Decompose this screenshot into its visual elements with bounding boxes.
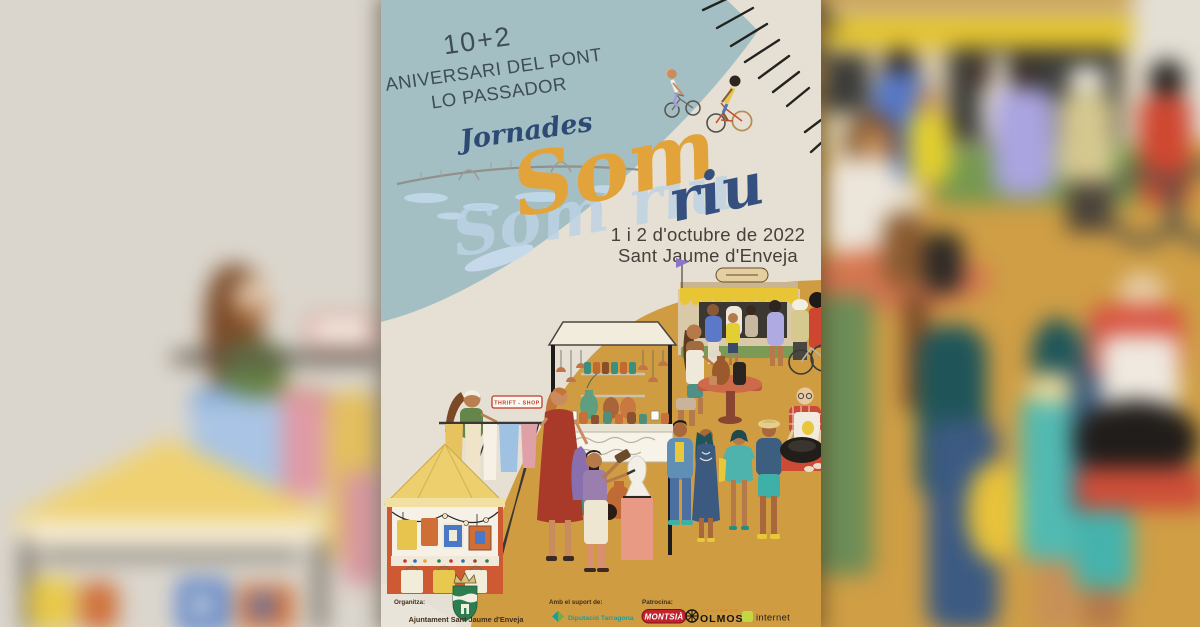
stall-canopy xyxy=(549,322,676,345)
blur-shape xyxy=(1077,468,1200,510)
blur-shape xyxy=(308,316,376,346)
blur-shape xyxy=(40,552,300,558)
organizer-name: Ajuntament Sant Jaume d'Enveja xyxy=(409,615,525,624)
internet-logo-icon xyxy=(742,611,753,622)
blurred-backdrop-shapes xyxy=(821,0,1200,627)
blur-shape xyxy=(971,58,993,88)
blur-shape xyxy=(1149,60,1185,98)
blur-shape xyxy=(18,520,330,546)
blur-shape xyxy=(1035,560,1079,627)
blur-shape xyxy=(315,540,325,627)
background-left-blur xyxy=(0,0,381,627)
blur-shape xyxy=(234,287,272,299)
blur-shape xyxy=(821,0,1141,16)
blur-shape xyxy=(1007,56,1035,90)
blur-shape xyxy=(923,232,963,294)
tshirt-display xyxy=(397,520,417,550)
blur-shape xyxy=(1059,92,1114,187)
blur-shape xyxy=(883,212,925,288)
internet-logo: internet xyxy=(742,611,790,624)
organizer-label: Organitza: xyxy=(394,599,425,606)
blur-shape xyxy=(282,392,326,497)
town-crest-icon xyxy=(453,573,477,621)
blur-shape xyxy=(1067,66,1107,92)
blur-shape xyxy=(342,470,380,585)
internet-logo-text: internet xyxy=(756,613,790,624)
blur-shape xyxy=(821,295,873,575)
blur-shape xyxy=(993,88,1055,196)
event-poster: Som riu 10+2 ANIVERSARI DEL PONT LO PASS… xyxy=(381,0,821,627)
blur-shape xyxy=(909,112,951,182)
support-name: Diputació Tarragona xyxy=(568,615,634,622)
date-line: 1 i 2 d'octubre de 2022 xyxy=(611,224,806,245)
blur-shape xyxy=(192,594,212,616)
sculpture-pedestal xyxy=(621,498,653,560)
festival-poster-graphic: Som riu 10+2 ANIVERSARI DEL PONT LO PASS… xyxy=(0,0,1200,627)
blur-shape xyxy=(1027,372,1077,404)
round-table xyxy=(698,375,762,393)
blur-shape xyxy=(1083,588,1123,627)
thrift-shop-sign-text: THRIFT - SHOP xyxy=(494,401,540,407)
montsia-logo: MONTSIÀ xyxy=(642,610,686,624)
sponsor-label: Patrocina: xyxy=(642,599,673,606)
location-line: Sant Jaume d'Enveja xyxy=(618,245,798,266)
blur-shape xyxy=(967,462,1023,562)
background-right-blur xyxy=(821,0,1200,627)
blur-shape xyxy=(1075,508,1133,593)
olmos-logo-text: OLMOS xyxy=(700,613,744,625)
montsia-logo-text: MONTSIÀ xyxy=(645,613,684,622)
blur-shape xyxy=(28,578,76,627)
blur-shape xyxy=(821,16,1136,48)
blur-shape xyxy=(232,276,272,322)
date-block: 1 i 2 d'octubre de 2022 Sant Jaume d'Env… xyxy=(611,224,806,266)
blur-shape xyxy=(172,352,380,364)
blur-shape xyxy=(1067,182,1107,232)
support-label: Amb el suport de: xyxy=(549,599,603,606)
blur-shape xyxy=(252,596,274,616)
blur-shape xyxy=(80,582,118,627)
blurred-backdrop-shapes xyxy=(0,0,381,627)
